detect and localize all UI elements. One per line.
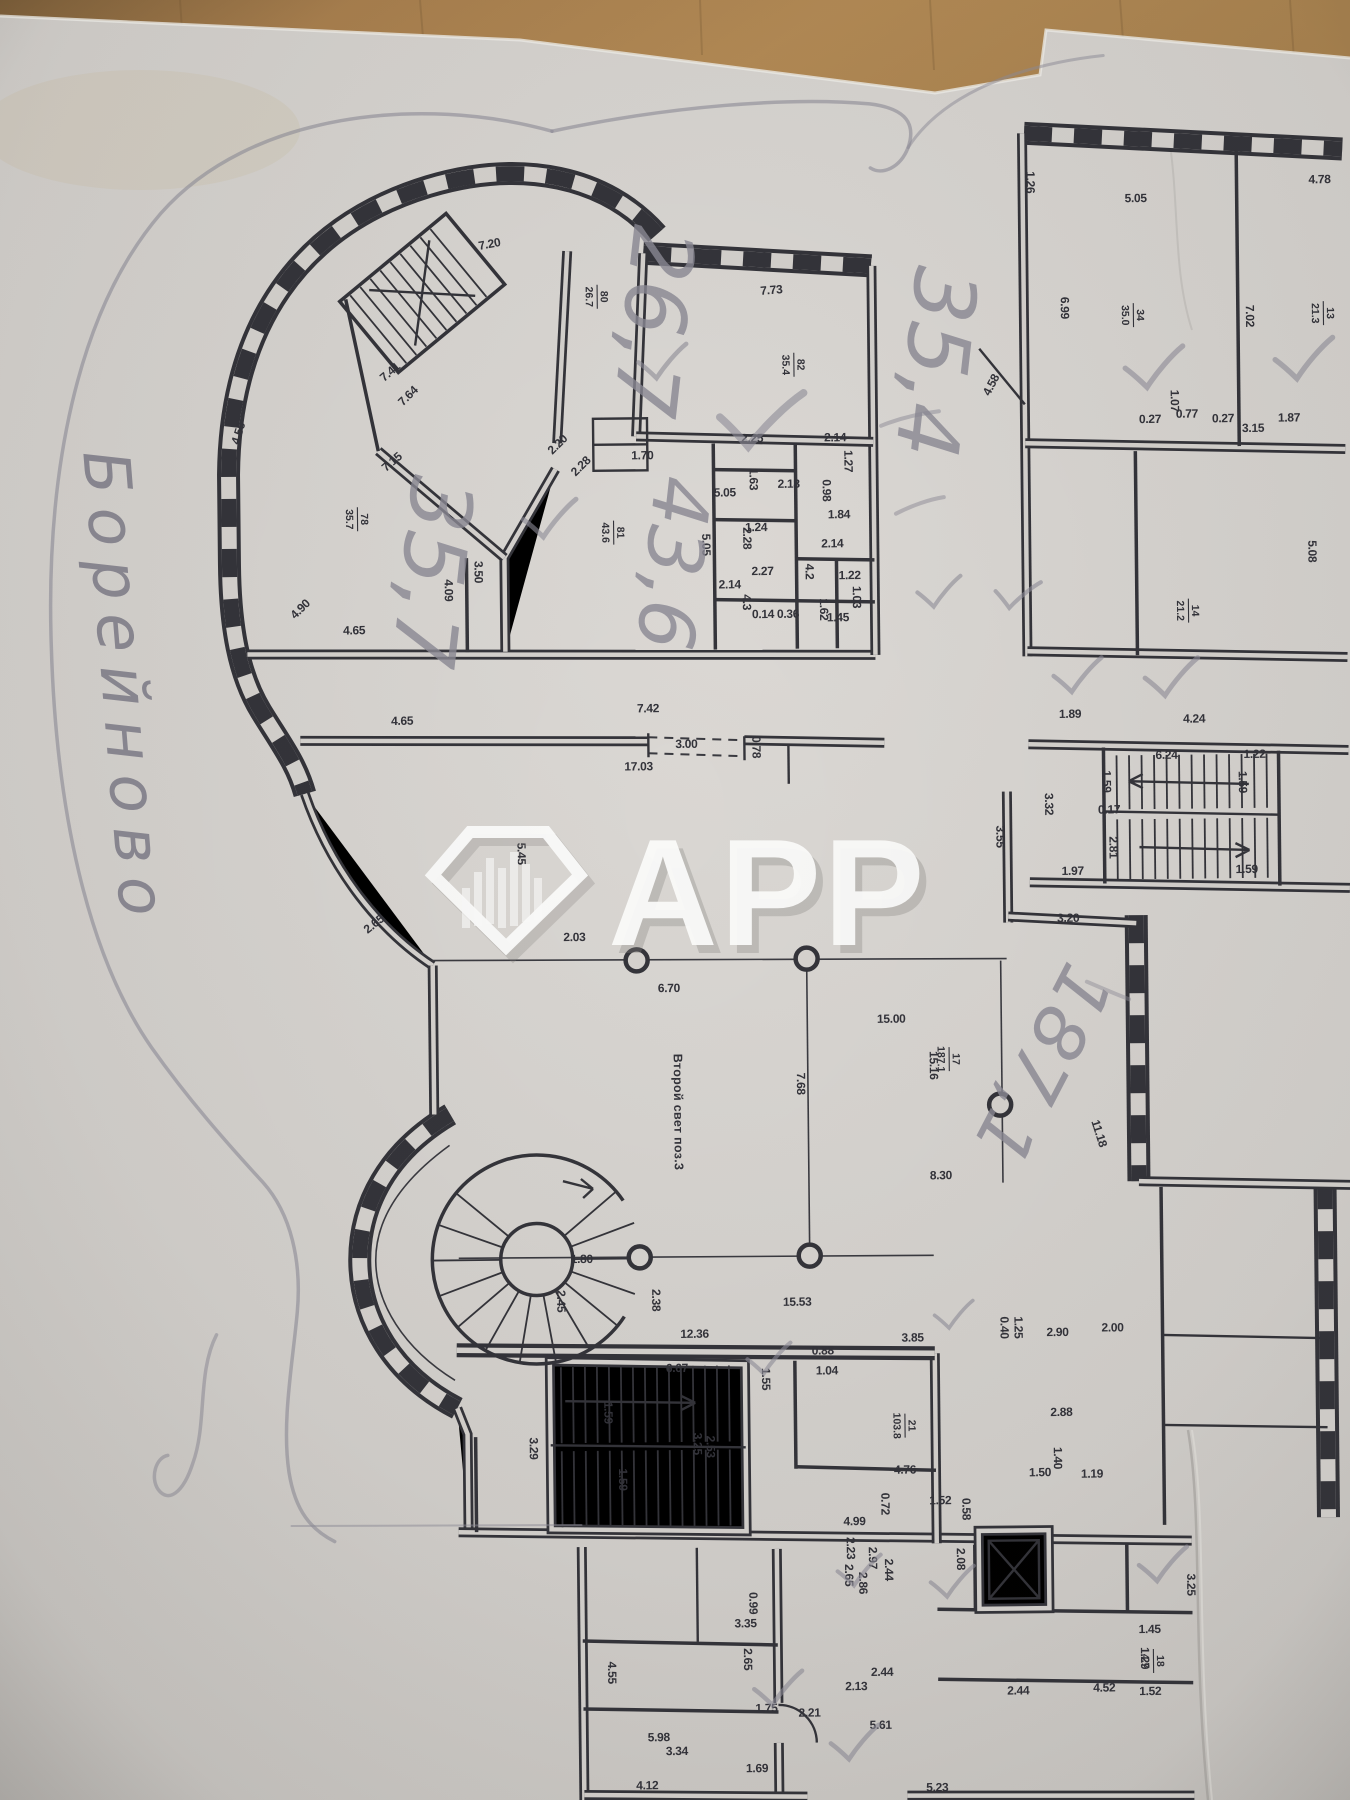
floorplan-drawing: 7.207.647.417.154.564.904.093.504.652.20… — [0, 0, 1350, 1800]
floorplan-photo: 7.207.647.417.154.564.904.093.504.652.20… — [0, 0, 1350, 1800]
photo-vignette — [0, 0, 1350, 1800]
